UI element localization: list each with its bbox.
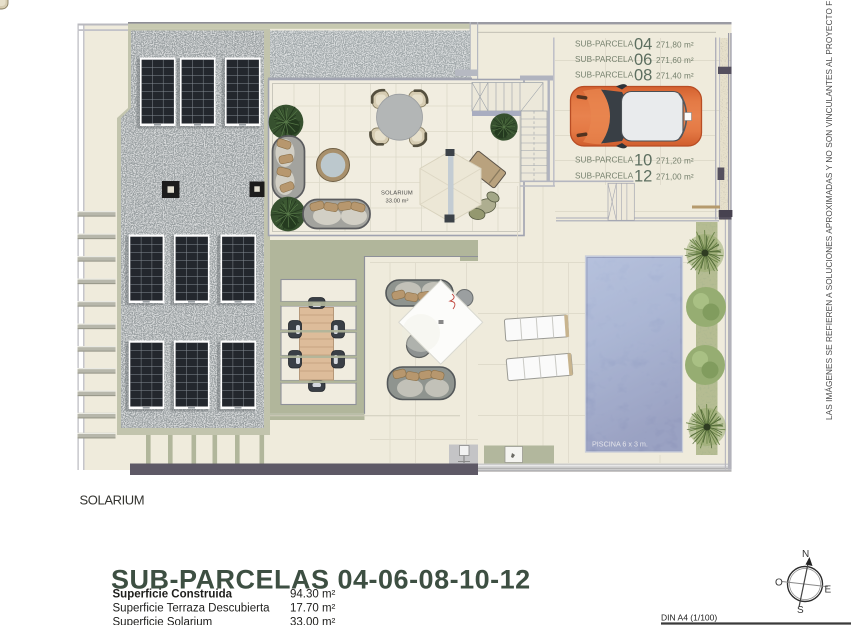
svg-text:08: 08 xyxy=(634,67,652,85)
svg-text:33.00 m²: 33.00 m² xyxy=(290,617,336,625)
svg-text:271,60 m²: 271,60 m² xyxy=(656,56,694,65)
svg-text:SOLARIUM: SOLARIUM xyxy=(381,191,413,197)
svg-text:E: E xyxy=(825,585,832,596)
svg-text:S: S xyxy=(797,605,804,616)
svg-text:Superficie Solarium: Superficie Solarium xyxy=(113,617,213,625)
svg-text:33.00 m²: 33.00 m² xyxy=(386,199,409,205)
svg-text:SUB-PARCELA: SUB-PARCELA xyxy=(575,71,634,80)
svg-text:SUB-PARCELA: SUB-PARCELA xyxy=(575,172,634,181)
svg-text:Superficie Construida: Superficie Construida xyxy=(113,589,233,601)
svg-text:N: N xyxy=(802,549,809,560)
svg-text:LAS IMÁGENES SE REFIEREN A SOL: LAS IMÁGENES SE REFIEREN A SOLUCIONES AP… xyxy=(824,0,834,420)
svg-text:17.70 m²: 17.70 m² xyxy=(290,603,336,615)
svg-text:12: 12 xyxy=(634,168,652,186)
svg-text:PISCINA 6 x 3 m.: PISCINA 6 x 3 m. xyxy=(592,440,648,449)
svg-text:271,20 m²: 271,20 m² xyxy=(656,157,694,166)
svg-text:271,40 m²: 271,40 m² xyxy=(656,72,694,81)
svg-text:SUB-PARCELA: SUB-PARCELA xyxy=(575,40,634,49)
svg-text:SUB-PARCELA: SUB-PARCELA xyxy=(575,156,634,165)
svg-text:271,80 m²: 271,80 m² xyxy=(656,41,694,50)
svg-text:SOLARIUM: SOLARIUM xyxy=(80,493,145,508)
svg-text:O: O xyxy=(775,578,783,589)
svg-text:94.30 m²: 94.30 m² xyxy=(290,589,336,601)
svg-text:SUB-PARCELA: SUB-PARCELA xyxy=(575,55,634,64)
svg-text:Superficie Terraza Descubierta: Superficie Terraza Descubierta xyxy=(113,603,271,615)
svg-text:271,00 m²: 271,00 m² xyxy=(656,173,694,182)
svg-text:DIN A4 (1/100): DIN A4 (1/100) xyxy=(661,613,717,623)
